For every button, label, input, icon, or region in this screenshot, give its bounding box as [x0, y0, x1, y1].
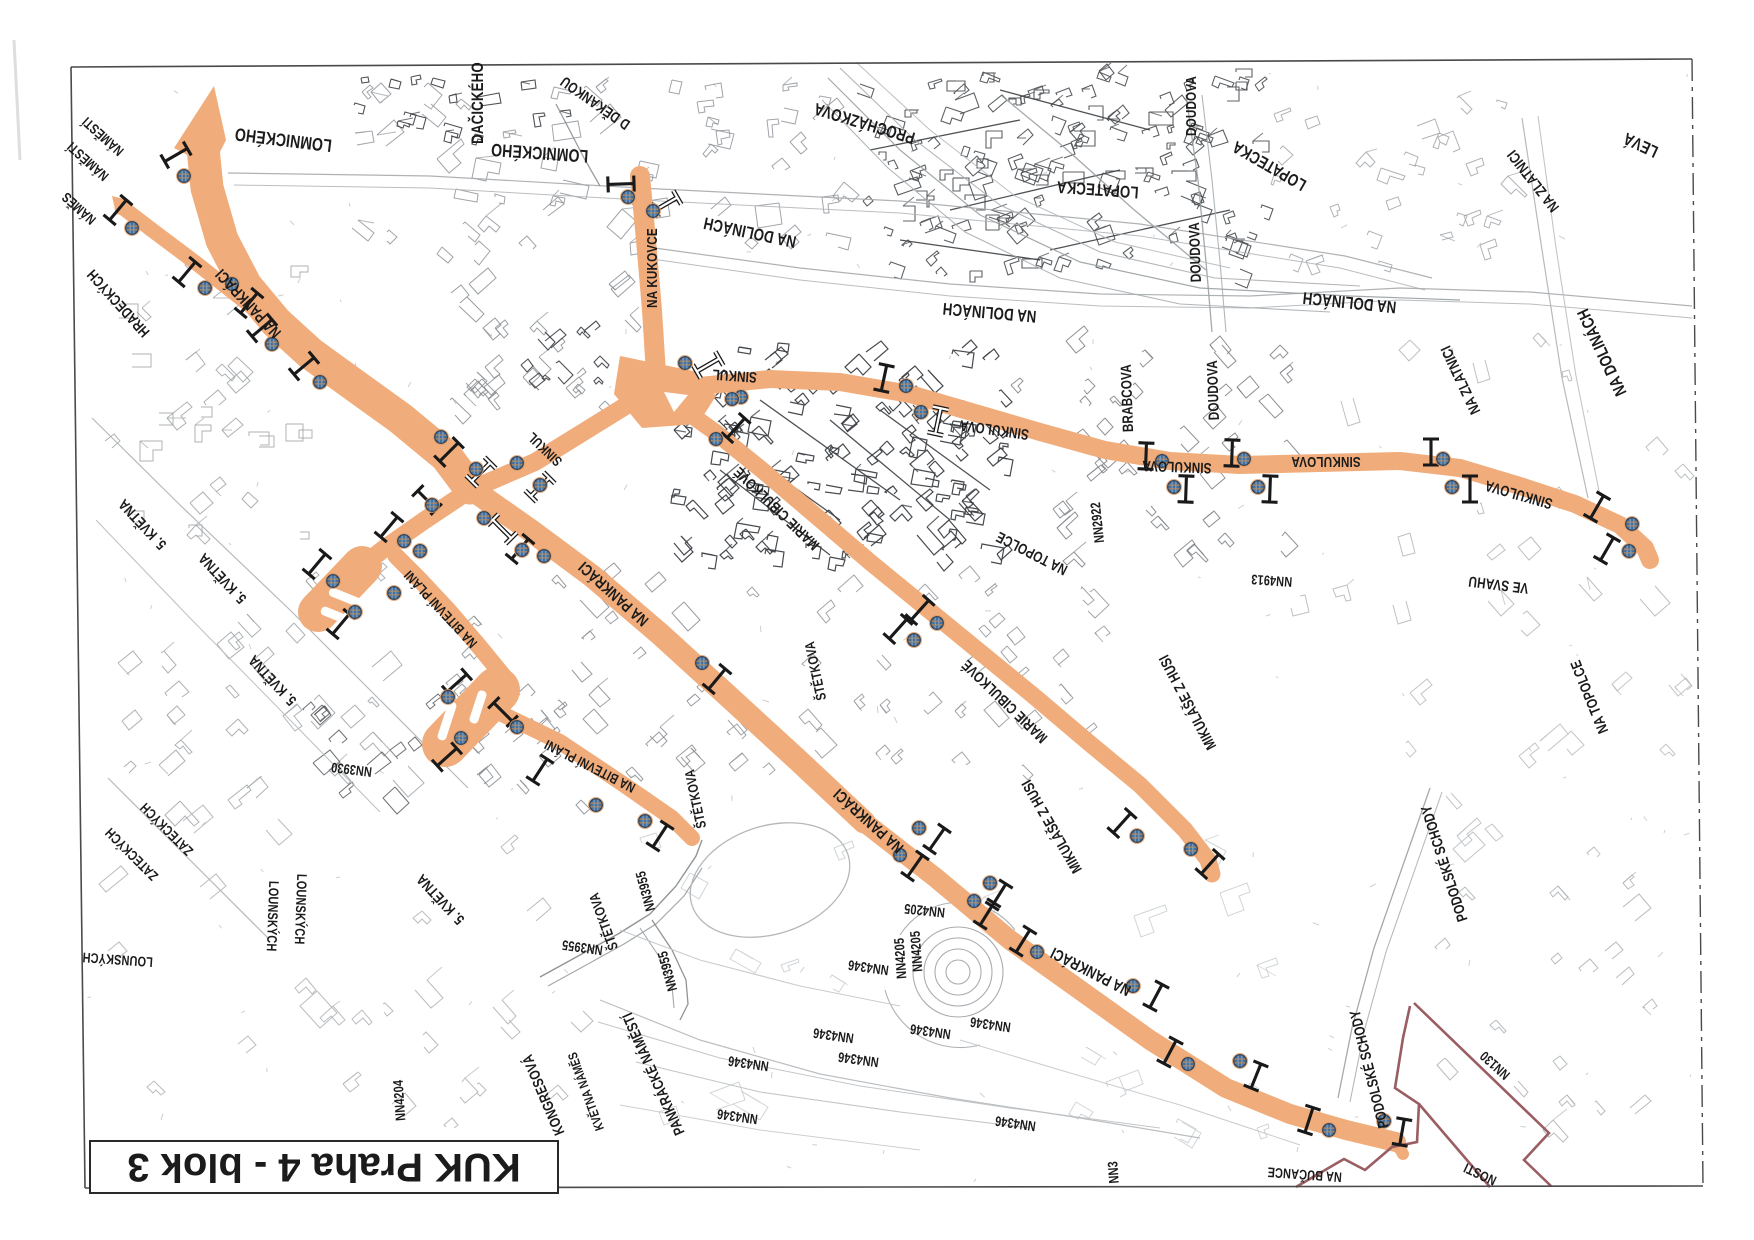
svg-text:NN3: NN3	[1105, 1161, 1122, 1184]
svg-text:BRABCOVA: BRABCOVA	[1117, 364, 1136, 433]
svg-text:NN4204: NN4204	[390, 1079, 408, 1121]
svg-text:LOUNSKÝCH: LOUNSKÝCH	[263, 881, 282, 952]
svg-text:DAČICKÉHO: DAČICKÉHO	[467, 62, 487, 144]
svg-text:DOUDOVA: DOUDOVA	[1183, 76, 1200, 136]
svg-text:SINKUL: SINKUL	[712, 366, 757, 386]
svg-text:NN4205: NN4205	[891, 937, 909, 979]
svg-text:DOUDOVA: DOUDOVA	[1204, 360, 1223, 421]
svg-text:DOUDOVA: DOUDOVA	[1186, 222, 1205, 283]
svg-text:LOUNSKÝCH: LOUNSKÝCH	[291, 874, 310, 945]
svg-text:NA KUKOVCE: NA KUKOVCE	[644, 228, 661, 308]
svg-text:NN4913: NN4913	[1251, 571, 1293, 589]
svg-text:SINKULOVA: SINKULOVA	[1291, 454, 1360, 471]
svg-text:SINKULOVA: SINKULOVA	[1142, 457, 1212, 476]
svg-text:NN4205: NN4205	[907, 930, 925, 972]
svg-text:KUK Praha 4 - blok 3: KUK Praha 4 - blok 3	[127, 1145, 520, 1189]
